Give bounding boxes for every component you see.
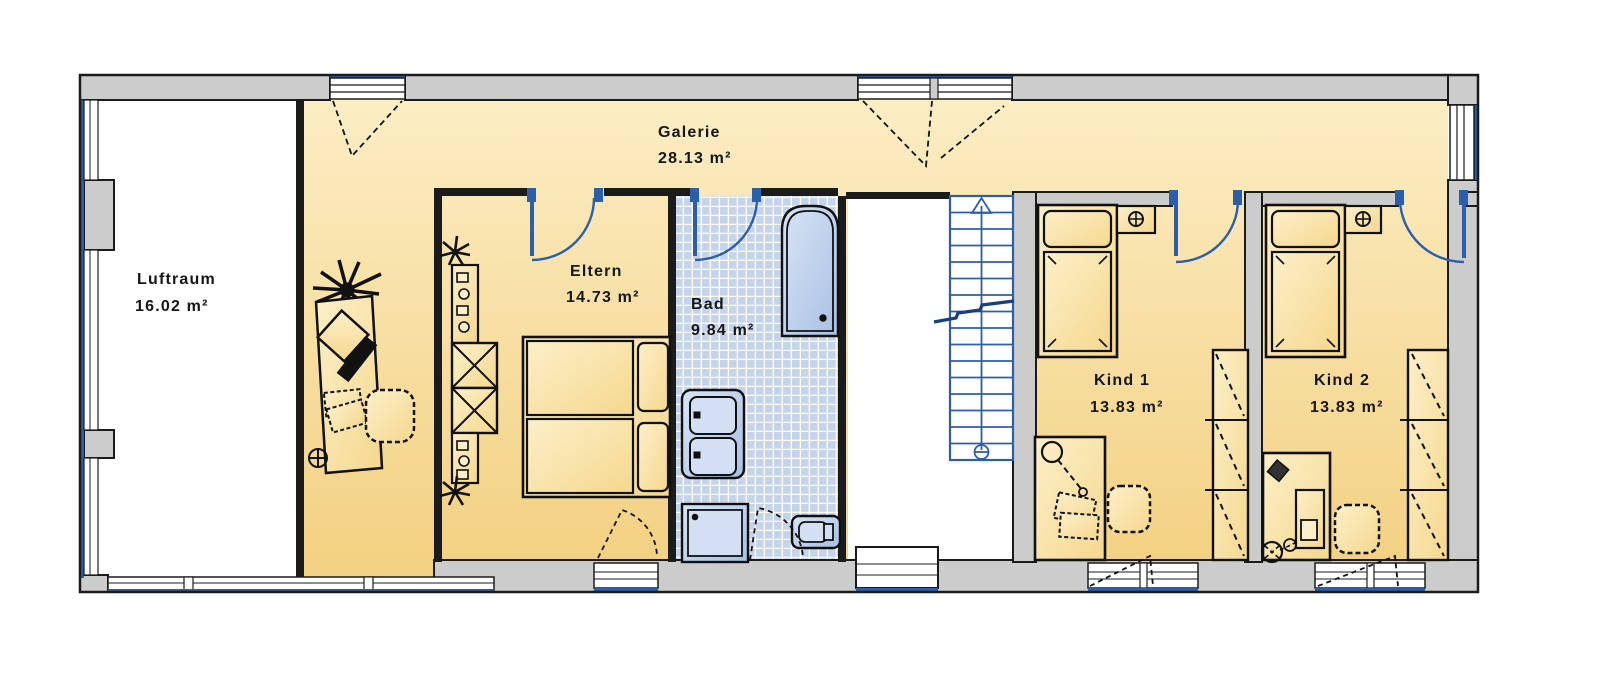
window-bottom-kind1 (1088, 563, 1198, 591)
window-left (80, 100, 98, 578)
wall-luftraum-galerie (296, 100, 304, 577)
wall-left-pier-2 (84, 430, 114, 458)
room-area-eltern: 14.73 m² (566, 289, 640, 306)
pillow-kind2 (1272, 211, 1339, 247)
wall-corner-ne (1448, 75, 1478, 105)
window-bottom-eltern (594, 563, 658, 591)
room-area-luftraum: 16.02 m² (135, 298, 209, 315)
mattress-eltern-1 (527, 341, 633, 415)
room-area-kind1: 13.83 m² (1090, 399, 1164, 416)
floor-plan-svg: Galerie 28.13 m² Luftraum 16.02 m² Elter… (0, 0, 1600, 684)
window-bottom-kind2 (1315, 563, 1425, 591)
chair-kind2 (1335, 505, 1379, 553)
chair-galerie (366, 390, 414, 442)
wall-top-a (80, 75, 330, 100)
room-area-galerie: 28.13 m² (658, 150, 732, 167)
chair-kind1 (1108, 486, 1150, 532)
wall-top-c (1012, 75, 1448, 100)
bathtub-drain (820, 315, 826, 321)
window-right (1450, 105, 1478, 180)
room-area-bad: 9.84 m² (691, 322, 755, 339)
pillow-eltern-1 (638, 343, 668, 411)
room-name-galerie: Galerie (658, 124, 721, 141)
wall-bad-north-a (668, 188, 693, 196)
wall-left-pier-1 (84, 180, 114, 250)
window-bottom-luftraum (108, 577, 494, 592)
room-area-kind2: 13.83 m² (1310, 399, 1384, 416)
floor-plan: Galerie 28.13 m² Luftraum 16.02 m² Elter… (0, 0, 1600, 684)
wall-top-b (405, 75, 858, 100)
floor-luftraum-void (96, 100, 298, 577)
window-bottom-landing (856, 547, 938, 591)
room-name-kind2: Kind 2 (1314, 372, 1370, 389)
bathtub (782, 206, 838, 336)
wall-galerie-eltern (434, 188, 442, 562)
pillow-kind1 (1044, 211, 1111, 247)
floor-galerie-column-strip (304, 562, 434, 578)
mattress-eltern-2 (527, 419, 633, 493)
room-name-luftraum: Luftraum (137, 271, 216, 288)
wall-eltern-north-a (434, 188, 528, 196)
wall-bad-north-b (759, 188, 838, 196)
pillow-eltern-2 (638, 423, 668, 491)
room-name-kind1: Kind 1 (1094, 372, 1150, 389)
mattress-kind1 (1044, 252, 1111, 351)
railing-gallery (846, 192, 950, 199)
mattress-kind2 (1272, 252, 1339, 351)
wall-corner-sw (80, 575, 108, 592)
room-name-bad: Bad (691, 296, 725, 313)
room-name-eltern: Eltern (570, 263, 623, 280)
wall-stair-kind1 (1013, 192, 1036, 562)
wall-eltern-north-b (604, 188, 668, 196)
